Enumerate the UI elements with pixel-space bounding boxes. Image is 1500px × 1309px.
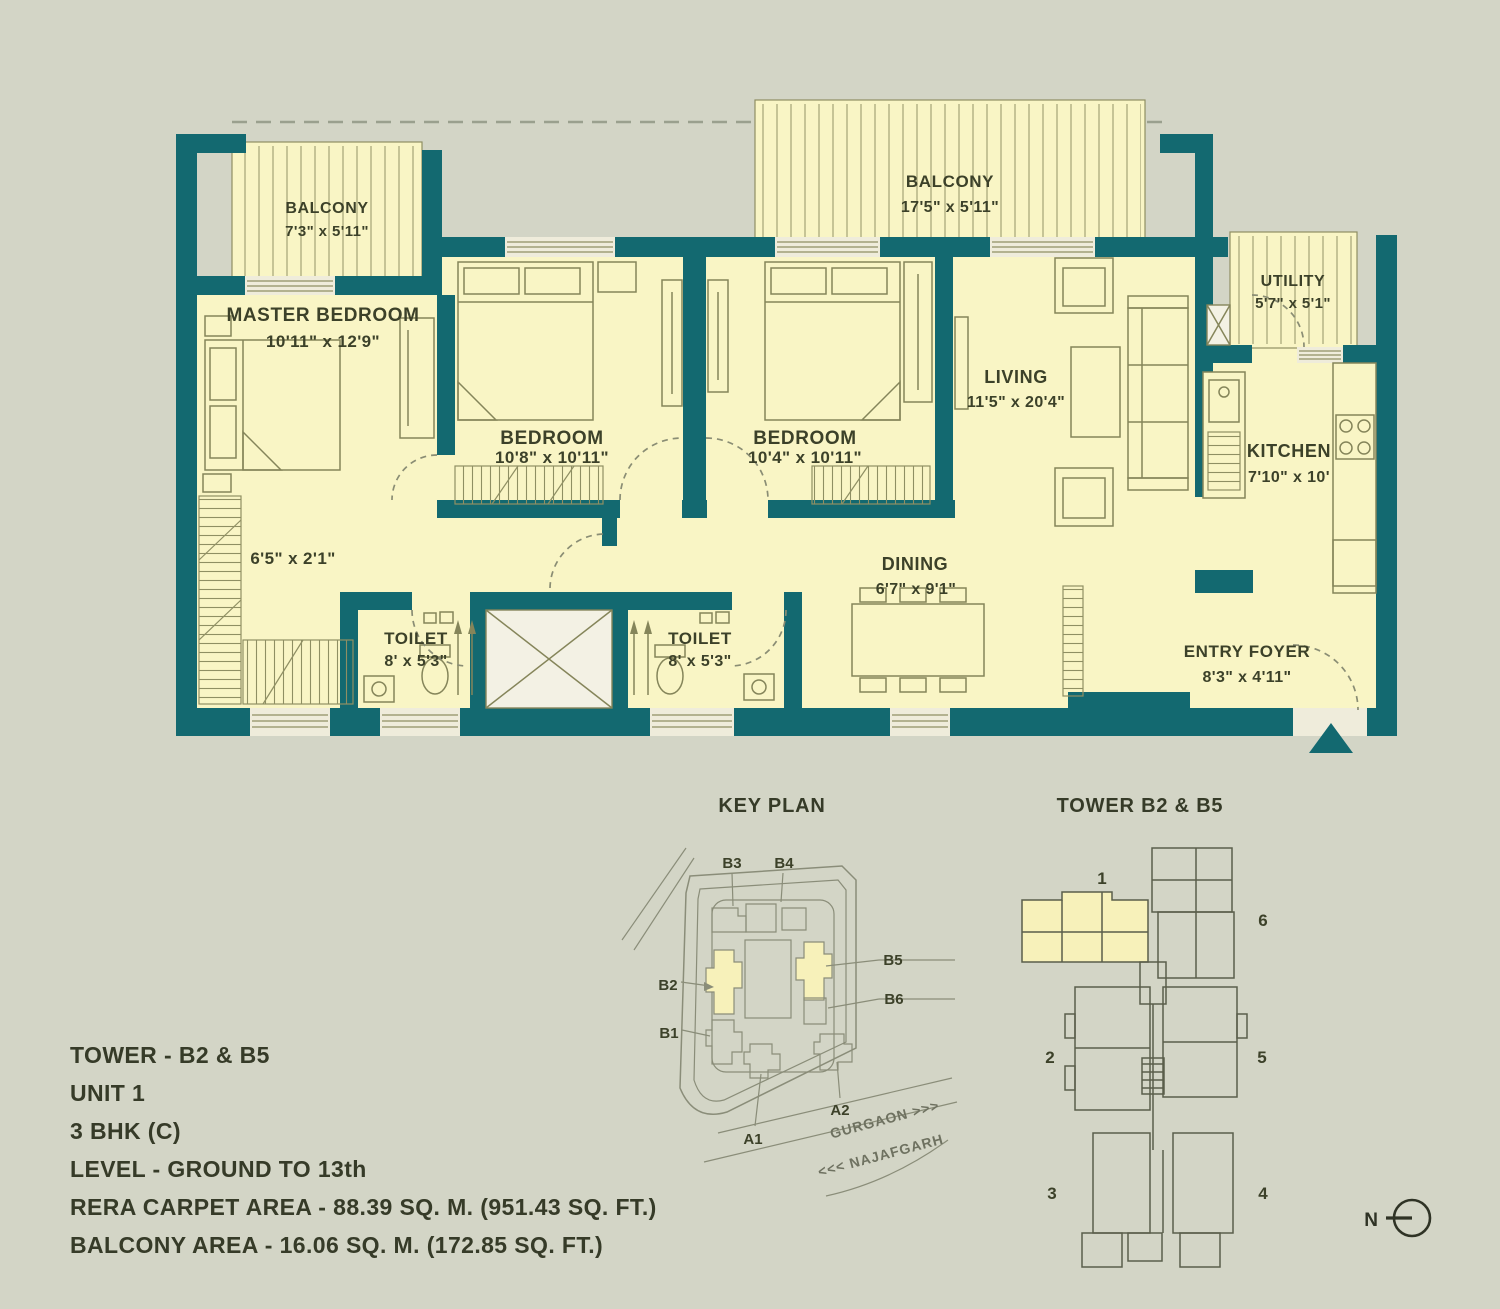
window-bedroom2 bbox=[505, 237, 615, 257]
info-balcony-area: BALCONY AREA - 16.06 SQ. M. (172.85 SQ. … bbox=[70, 1232, 603, 1258]
bedroom3-label: BEDROOM bbox=[753, 428, 856, 449]
info-carpet-area: RERA CARPET AREA - 88.39 SQ. M. (951.43 … bbox=[70, 1194, 657, 1220]
info-unit: UNIT 1 bbox=[70, 1080, 145, 1106]
foyer-shoe-rack bbox=[1063, 586, 1083, 696]
tower-unit1-highlight bbox=[1022, 892, 1148, 962]
key-label-a1: A1 bbox=[743, 1131, 762, 1148]
compass: N bbox=[1364, 1200, 1430, 1236]
balcony-large-dims: 17'5" x 5'11" bbox=[901, 199, 999, 216]
kitchen-label: KITCHEN bbox=[1247, 441, 1331, 461]
tower-unit-5: 5 bbox=[1257, 1048, 1266, 1067]
kitchen-sink-counter bbox=[1203, 372, 1245, 498]
tower-plan-title: TOWER B2 & B5 bbox=[1057, 795, 1224, 817]
window-utility-sill bbox=[1297, 347, 1343, 363]
dress-passage-dims: 6'5" x 2'1" bbox=[250, 549, 335, 568]
key-plan-title: KEY PLAN bbox=[718, 795, 825, 817]
toilet2-dims: 8' x 5'3" bbox=[668, 653, 731, 670]
dining-label: DINING bbox=[882, 554, 949, 574]
tower-plan-drawing bbox=[1022, 848, 1247, 1267]
bedroom3-dims: 10'4" x 10'11" bbox=[748, 448, 862, 467]
utility-dims: 5'7" x 5'1" bbox=[1255, 295, 1331, 312]
tower-unit-2: 2 bbox=[1045, 1048, 1054, 1067]
master-bedroom-label: MASTER BEDROOM bbox=[226, 305, 419, 326]
window-dining bbox=[890, 708, 950, 736]
tower-plan: TOWER B2 & B5 bbox=[1022, 795, 1430, 1267]
window-toilet1 bbox=[380, 708, 460, 736]
bedroom2-label: BEDROOM bbox=[500, 428, 603, 449]
key-label-b4: B4 bbox=[774, 855, 794, 872]
key-label-b5: B5 bbox=[883, 952, 902, 969]
master-bedroom-dims: 10'11" x 12'9" bbox=[266, 332, 380, 351]
tower-unit-4: 4 bbox=[1258, 1184, 1268, 1203]
key-label-b3: B3 bbox=[722, 855, 741, 872]
key-plan: KEY PLAN bbox=[622, 795, 957, 1196]
tower-unit-3: 3 bbox=[1047, 1184, 1056, 1203]
info-level: LEVEL - GROUND TO 13th bbox=[70, 1156, 367, 1182]
window-living-balcony bbox=[990, 237, 1095, 257]
balcony-small-label: BALCONY bbox=[285, 200, 368, 217]
balcony-small-dims: 7'3" x 5'11" bbox=[285, 223, 369, 240]
key-plan-tower-b5-highlight bbox=[796, 942, 832, 1000]
entry-foyer-label: ENTRY FOYER bbox=[1184, 642, 1311, 661]
floor-plan-page: BALCONY 7'3" x 5'11" BALCONY 17'5" x 5'1… bbox=[0, 0, 1500, 1309]
kitchen-dims: 7'10" x 10' bbox=[1248, 469, 1330, 486]
lift-shaft bbox=[486, 610, 612, 708]
key-label-a2: A2 bbox=[830, 1102, 849, 1119]
key-plan-labels: B3 B4 B2 B1 B5 B6 A1 A2 GURGAON >>> <<< … bbox=[658, 855, 945, 1180]
tower-unit-6: 6 bbox=[1258, 911, 1267, 930]
window-toilet2 bbox=[650, 708, 734, 736]
toilet1-label: TOILET bbox=[384, 629, 448, 648]
window-bedroom3-balcony bbox=[775, 237, 880, 257]
bedroom2-dims: 10'8" x 10'11" bbox=[495, 448, 609, 467]
key-label-b2: B2 bbox=[658, 977, 677, 994]
info-block: TOWER - B2 & B5 UNIT 1 3 BHK (C) LEVEL -… bbox=[70, 1042, 657, 1258]
living-label: LIVING bbox=[984, 367, 1048, 387]
info-tower: TOWER - B2 & B5 bbox=[70, 1042, 270, 1068]
living-dims: 11'5" x 20'4" bbox=[967, 394, 1065, 411]
floor-plan-canvas: BALCONY 7'3" x 5'11" BALCONY 17'5" x 5'1… bbox=[0, 0, 1500, 1309]
window-corridor bbox=[250, 708, 330, 736]
dining-dims: 6'7" x 9'1" bbox=[876, 581, 957, 598]
compass-north-label: N bbox=[1364, 1210, 1378, 1231]
key-label-b1: B1 bbox=[659, 1025, 678, 1042]
toilet1-dims: 8' x 5'3" bbox=[384, 653, 447, 670]
duct-shaft bbox=[1207, 305, 1230, 345]
utility-label: UTILITY bbox=[1261, 273, 1326, 290]
apartment-plan: BALCONY 7'3" x 5'11" BALCONY 17'5" x 5'1… bbox=[176, 100, 1397, 753]
balcony-large-label: BALCONY bbox=[906, 172, 994, 191]
info-bhk: 3 BHK (C) bbox=[70, 1118, 181, 1144]
entry-foyer-dims: 8'3" x 4'11" bbox=[1203, 669, 1292, 686]
key-label-b6: B6 bbox=[884, 991, 903, 1008]
utility-area bbox=[1230, 232, 1357, 348]
window-master-balcony bbox=[245, 276, 335, 295]
tower-unit-1: 1 bbox=[1097, 869, 1106, 888]
toilet2-label: TOILET bbox=[668, 629, 732, 648]
